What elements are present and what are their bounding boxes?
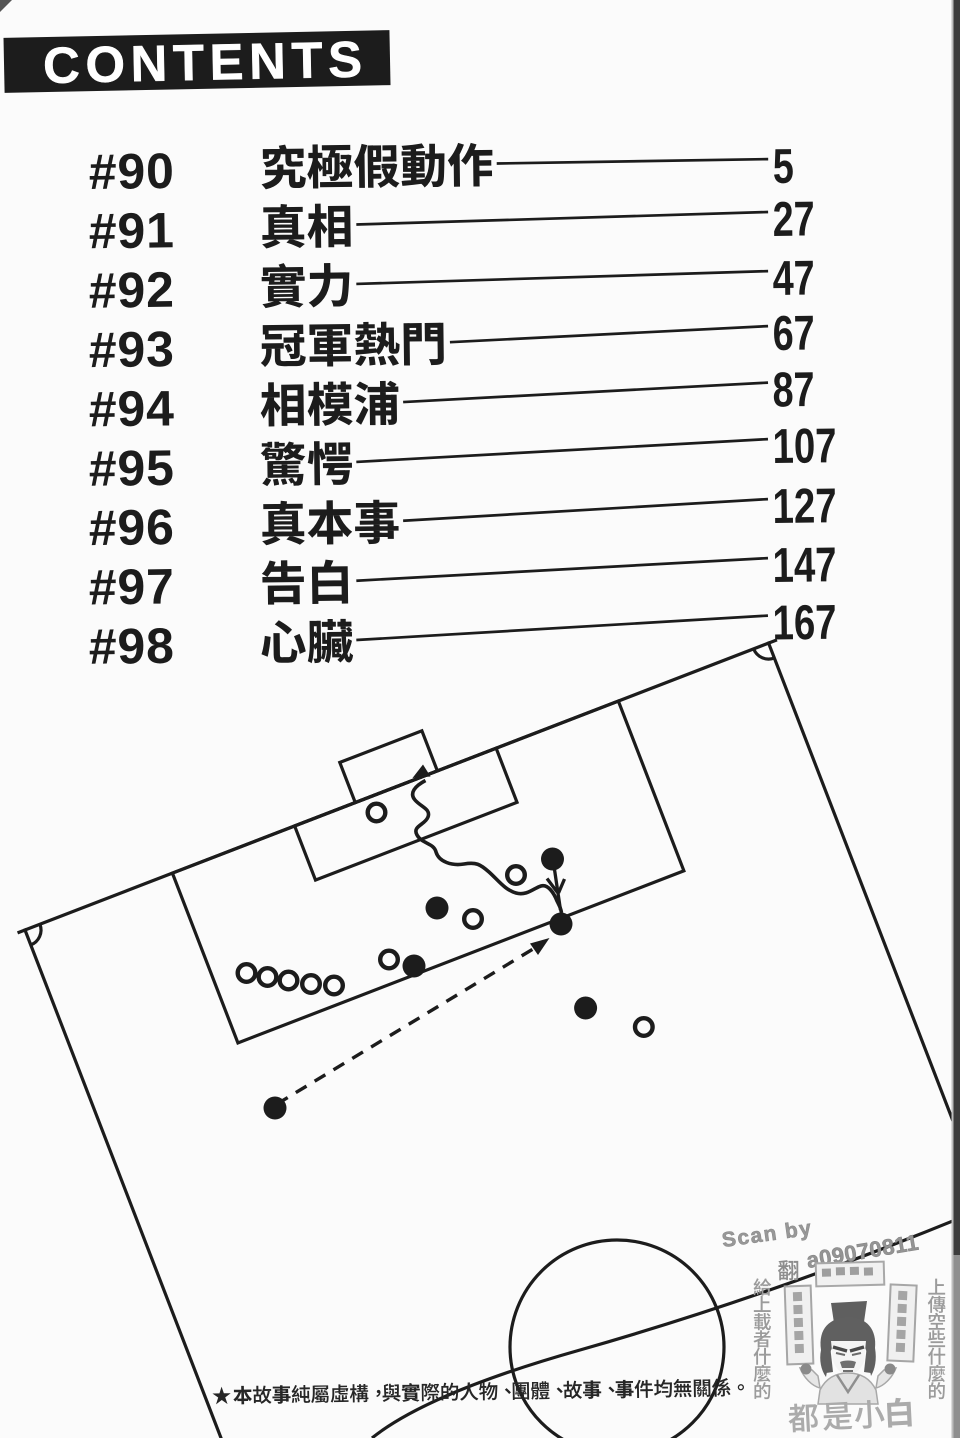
svg-text:Scan by: Scan by	[721, 1217, 814, 1252]
svg-text:5: 5	[772, 140, 794, 194]
svg-text:#97: #97	[88, 558, 175, 615]
svg-text:CONTENTS: CONTENTS	[42, 31, 368, 95]
svg-text:#98: #98	[88, 618, 175, 675]
svg-text:67: 67	[772, 307, 815, 362]
svg-text:147: 147	[772, 538, 837, 593]
svg-text:47: 47	[772, 252, 815, 307]
svg-text:107: 107	[772, 419, 837, 474]
svg-text:#92: #92	[88, 262, 175, 319]
svg-text:#94: #94	[88, 380, 175, 437]
svg-text:#91: #91	[88, 202, 175, 259]
svg-text:#96: #96	[88, 499, 175, 556]
svg-text:27: 27	[772, 192, 815, 247]
svg-text:#90: #90	[88, 143, 175, 200]
svg-text:#93: #93	[88, 321, 175, 378]
svg-text:127: 127	[772, 479, 837, 534]
svg-text:167: 167	[772, 596, 837, 651]
svg-text:#95: #95	[88, 440, 175, 497]
svg-text:87: 87	[772, 363, 815, 418]
